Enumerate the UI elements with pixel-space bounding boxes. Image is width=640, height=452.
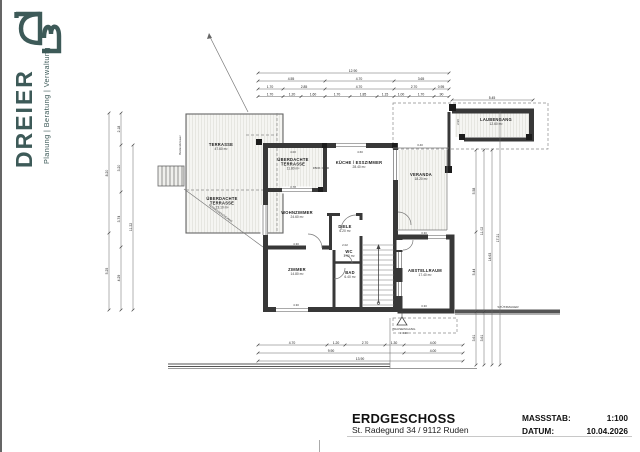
dimension-value: 2.70 [362, 341, 369, 345]
dimension-value: 1.70 [418, 92, 425, 96]
dimension-value: 3.74 [117, 216, 121, 223]
dimension-value: 14.63 [488, 253, 492, 262]
column [526, 134, 532, 140]
room-label: WOHNZIMMER24.60 m² [281, 210, 313, 219]
dimension-value: 3.20 [117, 165, 121, 172]
dimension-value: 1.00 [398, 92, 405, 96]
window [397, 252, 404, 268]
dimension-value: 1.60 [310, 92, 317, 96]
access-arrow [207, 33, 212, 39]
annotation-text: 3.78 [290, 185, 296, 189]
dimension-value: 12.90 [349, 69, 358, 73]
room-label: BAD6.40 m² [344, 270, 356, 279]
door-swing [334, 268, 345, 279]
drawing-address: St. Radegund 34 / 9112 Ruden [352, 425, 469, 435]
dimension-value: 4.00 [430, 349, 437, 353]
annotation-text: 3.40 [417, 143, 423, 147]
dimension-value: 4.29 [117, 275, 121, 282]
dimension-value: 1.70 [267, 85, 274, 89]
exterior-stair [158, 166, 184, 186]
dimension-value: 11.22 [129, 223, 133, 231]
window [397, 282, 404, 296]
staircase [363, 244, 394, 305]
annotation-text: ± 0.00 [400, 331, 408, 335]
dimension-value: 1.20 [333, 341, 340, 345]
window [392, 150, 399, 180]
door-opening [306, 245, 322, 252]
window [428, 234, 446, 241]
dimension-value: 4.70 [289, 341, 296, 345]
window [276, 307, 308, 314]
window [282, 187, 312, 194]
annotation-text: 4.30 [293, 242, 299, 246]
dimension-value: 0.95 [438, 85, 445, 89]
dimension-value: 1.70 [334, 92, 341, 96]
dimension-value: .90 [439, 92, 444, 96]
annotation-text: 2.96 [456, 119, 460, 125]
scale-label: MASSSTAB: [522, 413, 571, 423]
dimension-value: 3.61 [480, 335, 484, 342]
date-label: DATUM: [522, 426, 554, 436]
dimension-value: 4.00 [430, 341, 437, 345]
dimension-value: 4.70 [356, 85, 363, 89]
column [322, 143, 327, 148]
veranda-area [397, 150, 447, 230]
dimension-value: 1.20 [289, 92, 296, 96]
drawing-title: ERDGESCHOSS [352, 411, 455, 426]
drawing-sheet: { "branding": { "name": "DREIER", "tagli… [0, 0, 640, 452]
dimension-value: 1.85 [360, 92, 367, 96]
dimension-value: 2.70 [411, 85, 418, 89]
annotation-text: 4.00 [290, 150, 296, 154]
date-value: 10.04.2026 [586, 426, 628, 436]
door-opening [359, 220, 366, 236]
dimension-value: 5.25 [105, 268, 109, 275]
annotation-text: 2.02 [342, 243, 348, 247]
dimension-value: 1.70 [267, 92, 274, 96]
window [336, 142, 366, 149]
dimension-value: 1.30 [391, 341, 398, 345]
column [256, 139, 262, 145]
dimension-value: 13.90 [356, 357, 365, 361]
access-line [209, 35, 248, 112]
dimension-value: 4.55 [288, 77, 295, 81]
dimension-value: 11.02 [480, 227, 484, 235]
room-label: ZIMMER14.80 m² [288, 267, 306, 276]
titleblock-divider [347, 436, 632, 437]
annotation-text: 3.30 [421, 304, 427, 308]
door-opening [397, 240, 404, 250]
dimension-value: 17.21 [496, 234, 500, 243]
dimension-value: 2.85 [301, 85, 308, 89]
room-label: DIELE6.20 m² [338, 224, 351, 233]
floor-plan: 12.904.554.703.651.702.854.702.700.951.7… [0, 0, 640, 452]
annotation-text: 4.30 [293, 303, 299, 307]
column [392, 143, 397, 148]
dimension-value: 5.45 [489, 96, 496, 100]
dimension-value: 5.58 [472, 188, 476, 195]
annotation-text: FBOK ± 0.00 [313, 166, 330, 170]
annotation-text: Bestandsmauer [178, 135, 182, 155]
terrain-double-line [168, 364, 390, 367]
window [261, 205, 268, 235]
annotation-text: 4.60 [357, 150, 363, 154]
column [318, 187, 323, 192]
dimension-value: 2.18 [117, 126, 121, 133]
dimension-value: 5.44 [472, 269, 476, 276]
dimension-value: 3.65 [418, 77, 425, 81]
room-label: KÜCHE / ESSZIMMER28.40 m² [336, 160, 383, 169]
scale-value: 1:100 [607, 413, 628, 423]
column [445, 166, 452, 173]
annotation-text: 3.30 [421, 231, 427, 235]
column [449, 104, 456, 111]
dimension-value: 9.90 [328, 349, 335, 353]
dimension-value: 8.20 [105, 170, 109, 177]
door-swing [403, 240, 413, 250]
column [459, 134, 465, 140]
room-label: ABSTELLRAUM17.40 m² [408, 268, 442, 277]
annotation-text: STÜTZMAUER [497, 305, 519, 309]
dimension-value: 1.15 [382, 92, 389, 96]
dimension-value: 3.61 [472, 335, 476, 342]
dimension-value: 4.70 [356, 77, 363, 81]
room-label: WC1.90 m² [343, 249, 355, 258]
